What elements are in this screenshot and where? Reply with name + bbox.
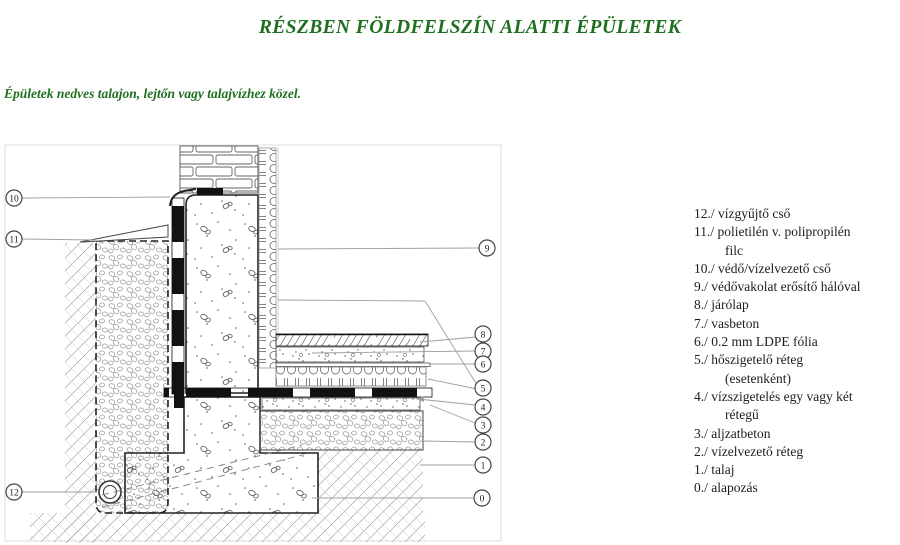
page-subtitle: Épületek nedves talajon, lejtőn vagy tal… <box>4 86 301 102</box>
callout-5: 5 <box>475 380 491 396</box>
svg-text:1: 1 <box>481 461 486 471</box>
layer-screed <box>262 398 420 410</box>
legend-item: 12./ vízgyűjtő cső <box>694 205 900 223</box>
callout-9: 9 <box>479 240 495 256</box>
edge-insulation-strip <box>259 148 276 368</box>
page-title: RÉSZBEN FÖLDFELSZÍN ALATTI ÉPÜLETEK <box>0 17 900 39</box>
svg-text:9: 9 <box>485 244 490 254</box>
legend-item-continuation: rétegű <box>694 406 900 424</box>
layer-floor-tile <box>276 334 428 346</box>
basement-wall <box>186 195 258 393</box>
svg-text:12: 12 <box>9 488 19 498</box>
foundation-detail-drawing: 1011129876543210 <box>0 143 512 545</box>
svg-text:6: 6 <box>481 360 486 370</box>
legend-item: 0./ alapozás <box>694 479 900 497</box>
callout-2: 2 <box>475 434 491 450</box>
legend-item-continuation: filc <box>694 242 900 260</box>
svg-text:2: 2 <box>481 438 486 448</box>
legend-item: 8./ járólap <box>694 296 900 314</box>
legend-item: 7./ vasbeton <box>694 315 900 333</box>
legend-item: 9./ védővakolat erősítő hálóval <box>694 278 900 296</box>
legend-list: 12./ vízgyűjtő cső11./ polietilén v. pol… <box>694 205 900 498</box>
legend-item: 5./ hőszigetelő réteg <box>694 351 900 369</box>
svg-text:3: 3 <box>481 421 486 431</box>
svg-text:0: 0 <box>480 494 485 504</box>
callout-1: 1 <box>475 457 491 473</box>
callout-10: 10 <box>6 190 22 206</box>
membrane-vertical <box>172 198 184 394</box>
callout-4: 4 <box>475 399 491 415</box>
drain-pipe <box>99 481 121 503</box>
legend-item: 11./ polietilén v. polipropilén <box>694 223 900 241</box>
callout-8: 8 <box>475 326 491 342</box>
legend-item: 10./ védő/vízelvezető cső <box>694 260 900 278</box>
layer-drainage-gravel <box>260 411 423 450</box>
legend-item: 4./ vízszigetelés egy vagy két <box>694 388 900 406</box>
svg-text:10: 10 <box>9 194 19 204</box>
membrane-bottom-wrap <box>174 394 184 408</box>
brick-masonry <box>180 146 258 193</box>
layer-reinforced-concrete <box>276 347 424 362</box>
dampproof-cap <box>197 188 223 195</box>
legend-item: 1./ talaj <box>694 461 900 479</box>
legend-item-continuation: (esetenként) <box>694 370 900 388</box>
callout-12: 12 <box>6 484 22 500</box>
legend-item: 2./ vízelvezető réteg <box>694 443 900 461</box>
svg-text:11: 11 <box>9 235 18 245</box>
callout-11: 11 <box>6 231 22 247</box>
svg-text:8: 8 <box>481 330 486 340</box>
layer-thermal-insulation <box>276 367 426 386</box>
svg-text:4: 4 <box>481 403 486 413</box>
layer-waterproofing-horizontal <box>164 388 432 397</box>
layer-ldpe-foil <box>276 363 430 367</box>
legend-item: 6./ 0.2 mm LDPE fólia <box>694 333 900 351</box>
callout-3: 3 <box>475 417 491 433</box>
legend-item: 3./ aljzatbeton <box>694 425 900 443</box>
svg-text:5: 5 <box>481 384 486 394</box>
callout-0: 0 <box>474 490 490 506</box>
callout-6: 6 <box>475 356 491 372</box>
grade-apron-wedge <box>80 225 168 242</box>
